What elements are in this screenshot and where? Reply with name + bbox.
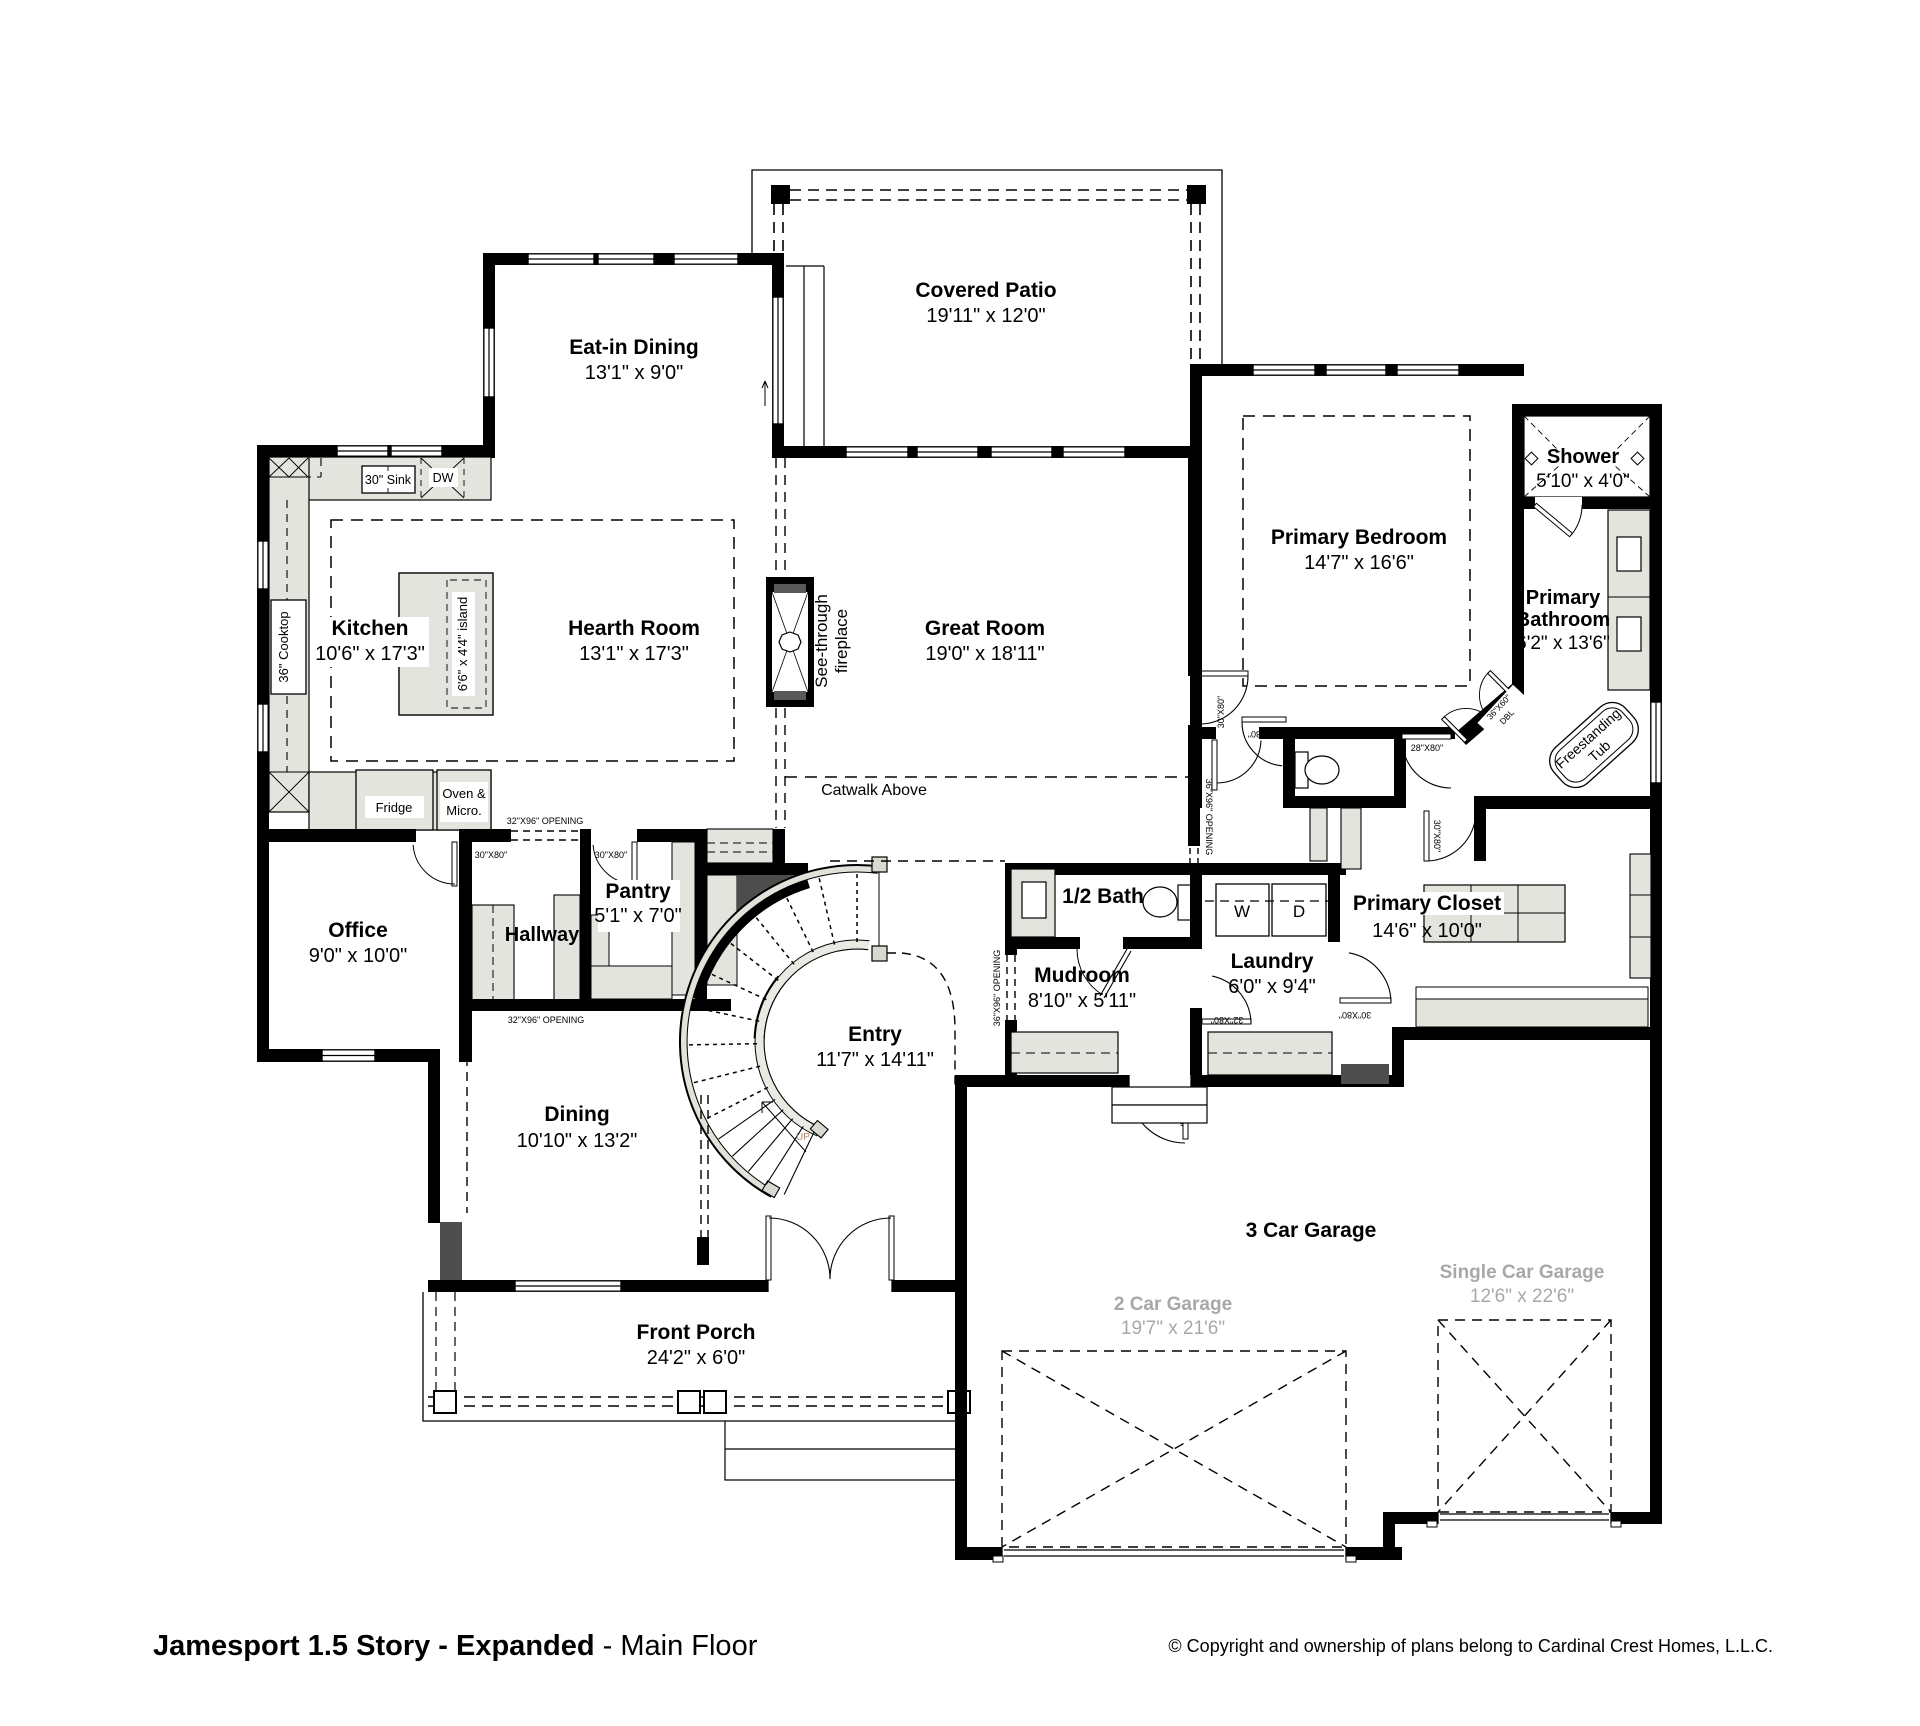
svg-text:3 Car Garage: 3 Car Garage [1246, 1219, 1377, 1242]
svg-text:UP: UP [796, 1132, 810, 1143]
svg-text:Hallway: Hallway [505, 924, 580, 946]
svg-text:Shower: Shower [1547, 446, 1619, 468]
svg-text:32"X80": 32"X80" [1211, 1015, 1243, 1025]
svg-text:Dining: Dining [544, 1103, 609, 1126]
svg-text:2 Car Garage: 2 Car Garage [1114, 1294, 1232, 1315]
svg-text:19'11" x 12'0": 19'11" x 12'0" [926, 305, 1045, 327]
svg-text:Covered Patio: Covered Patio [915, 279, 1056, 302]
svg-text:Primary: Primary [1526, 587, 1601, 609]
svg-text:Jamesport 1.5 Story - Expanded: Jamesport 1.5 Story - Expanded - Main Fl… [153, 1630, 758, 1662]
svg-text:5'1" x 7'0": 5'1" x 7'0" [594, 905, 681, 927]
svg-text:Eat-in Dining: Eat-in Dining [569, 336, 699, 359]
svg-text:Entry: Entry [848, 1023, 902, 1046]
svg-text:Single Car Garage: Single Car Garage [1440, 1262, 1605, 1283]
svg-text:30"X80": 30"X80" [1216, 696, 1226, 728]
svg-text:12'6" x 22'6": 12'6" x 22'6" [1470, 1286, 1574, 1307]
svg-text:Pantry: Pantry [605, 880, 671, 903]
svg-text:Oven &: Oven & [442, 786, 486, 801]
svg-text:5'10" x 4'0": 5'10" x 4'0" [1536, 471, 1630, 492]
svg-text:32"X96" OPENING: 32"X96" OPENING [507, 816, 583, 826]
svg-text:Micro.: Micro. [446, 803, 481, 818]
svg-text:19'0" x 18'11": 19'0" x 18'11" [925, 643, 1044, 665]
svg-text:32"X96" OPENING: 32"X96" OPENING [508, 1015, 584, 1025]
svg-text:24'2" x 6'0": 24'2" x 6'0" [647, 1347, 746, 1369]
svg-text:Bathroom: Bathroom [1516, 609, 1610, 631]
svg-text:13'1" x 17'3": 13'1" x 17'3" [579, 643, 689, 665]
svg-text:1/2 Bath: 1/2 Bath [1062, 885, 1144, 908]
svg-text:Kitchen: Kitchen [331, 617, 408, 640]
svg-text:Great Room: Great Room [925, 617, 1045, 640]
svg-text:14'7" x 16'6": 14'7" x 16'6" [1304, 552, 1414, 574]
svg-text:6'2" x 13'6": 6'2" x 13'6" [1516, 633, 1610, 654]
svg-text:W: W [1234, 902, 1250, 921]
svg-text:Hearth Room: Hearth Room [568, 617, 700, 640]
svg-text:30"X80": 30"X80" [475, 850, 507, 860]
svg-text:36"X96" OPENING: 36"X96" OPENING [992, 950, 1002, 1026]
svg-text:Catwalk Above: Catwalk Above [821, 782, 927, 799]
svg-text:24"X80": 24"X80" [1248, 729, 1280, 739]
svg-text:30"X80": 30"X80" [1432, 820, 1442, 852]
svg-text:30"X80": 30"X80" [1339, 1010, 1371, 1020]
svg-text:Office: Office [328, 919, 388, 942]
svg-text:28"X80": 28"X80" [1411, 743, 1443, 753]
svg-text:30"X80": 30"X80" [595, 850, 627, 860]
svg-text:D: D [1293, 902, 1305, 921]
svg-text:10'10" x 13'2": 10'10" x 13'2" [517, 1130, 638, 1152]
svg-text:13'1" x 9'0": 13'1" x 9'0" [585, 362, 684, 384]
svg-text:Fridge: Fridge [376, 800, 413, 815]
svg-text:30" Sink: 30" Sink [365, 473, 412, 487]
svg-text:See-through: See-through [812, 594, 831, 688]
svg-text:19'7" x 21'6": 19'7" x 21'6" [1121, 1318, 1225, 1339]
svg-text:14'6" x 10'0": 14'6" x 10'0" [1372, 920, 1482, 942]
svg-text:© Copyright and ownership of p: © Copyright and ownership of plans belon… [1168, 1636, 1773, 1656]
svg-text:11'7" x 14'11": 11'7" x 14'11" [816, 1049, 934, 1071]
svg-text:6'6" x 4'4" island: 6'6" x 4'4" island [455, 597, 470, 691]
svg-text:Primary Closet: Primary Closet [1353, 892, 1501, 915]
svg-text:9'0" x 10'0": 9'0" x 10'0" [309, 945, 408, 967]
svg-text:Laundry: Laundry [1231, 950, 1314, 973]
svg-text:10'6" x 17'3": 10'6" x 17'3" [315, 643, 425, 665]
svg-text:8'10" x 5'11": 8'10" x 5'11" [1028, 990, 1136, 1012]
svg-text:DW: DW [433, 471, 454, 485]
svg-text:Mudroom: Mudroom [1034, 964, 1130, 987]
svg-text:6'0" x 9'4": 6'0" x 9'4" [1228, 976, 1315, 998]
svg-text:fireplace: fireplace [832, 609, 851, 673]
svg-text:Front Porch: Front Porch [637, 1321, 756, 1344]
svg-text:Primary Bedroom: Primary Bedroom [1271, 526, 1447, 549]
svg-text:36" Cooktop: 36" Cooktop [276, 611, 291, 682]
